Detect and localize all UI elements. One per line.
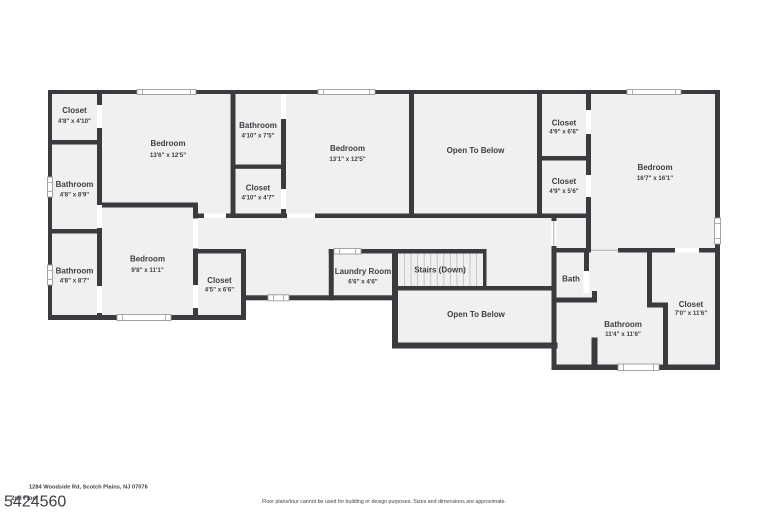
svg-text:4'10" x 4'7": 4'10" x 4'7" xyxy=(242,195,275,202)
svg-text:Closet: Closet xyxy=(552,177,577,186)
svg-text:9'8" x 11'1": 9'8" x 11'1" xyxy=(131,267,164,274)
svg-text:16'7" x 16'1": 16'7" x 16'1" xyxy=(637,175,673,182)
svg-text:1284 Woodside Rd, Scotch Plain: 1284 Woodside Rd, Scotch Plains, NJ 0707… xyxy=(29,485,148,491)
svg-text:6'6" x 4'6": 6'6" x 4'6" xyxy=(348,279,378,286)
svg-text:4'8" x 4'10": 4'8" x 4'10" xyxy=(58,118,91,125)
svg-text:Bedroom: Bedroom xyxy=(150,139,185,148)
svg-text:Closet: Closet xyxy=(62,106,87,115)
svg-text:4'9" x 6'6": 4'9" x 6'6" xyxy=(549,129,579,136)
svg-text:Bedroom: Bedroom xyxy=(637,163,672,172)
svg-text:Closet: Closet xyxy=(552,119,577,128)
svg-text:Bathroom: Bathroom xyxy=(56,180,94,189)
svg-text:Closet: Closet xyxy=(207,276,232,285)
svg-text:Bathroom: Bathroom xyxy=(604,320,642,329)
svg-text:Closet: Closet xyxy=(246,184,271,193)
svg-text:4'8" x 8'7": 4'8" x 8'7" xyxy=(60,278,90,285)
svg-text:4'9" x 5'6": 4'9" x 5'6" xyxy=(549,188,579,195)
svg-text:Bedroom: Bedroom xyxy=(330,144,365,153)
svg-text:Laundry Room: Laundry Room xyxy=(335,267,391,276)
svg-text:4'10" x 7'5": 4'10" x 7'5" xyxy=(242,133,275,140)
svg-text:Stairs (Down): Stairs (Down) xyxy=(414,266,466,275)
svg-text:13'1" x 12'5": 13'1" x 12'5" xyxy=(329,156,365,163)
svg-text:Closet: Closet xyxy=(679,300,704,309)
svg-text:5424560: 5424560 xyxy=(4,494,66,511)
svg-text:7'0" x 11'6": 7'0" x 11'6" xyxy=(675,310,708,317)
svg-text:Open To Below: Open To Below xyxy=(447,310,505,319)
svg-text:4'8" x 8'9": 4'8" x 8'9" xyxy=(60,192,90,199)
svg-text:11'4" x 11'6": 11'4" x 11'6" xyxy=(605,331,641,338)
svg-text:4'5" x 6'6": 4'5" x 6'6" xyxy=(205,287,235,294)
svg-text:Bath: Bath xyxy=(562,275,580,284)
svg-text:Open To Below: Open To Below xyxy=(447,146,505,155)
svg-text:Bathroom: Bathroom xyxy=(56,267,94,276)
svg-text:Bathroom: Bathroom xyxy=(239,121,277,130)
svg-text:Bedroom: Bedroom xyxy=(130,255,165,264)
svg-text:Floor plans/tour cannot be use: Floor plans/tour cannot be used for buil… xyxy=(262,499,506,505)
svg-text:13'6" x 12'5": 13'6" x 12'5" xyxy=(150,152,186,159)
